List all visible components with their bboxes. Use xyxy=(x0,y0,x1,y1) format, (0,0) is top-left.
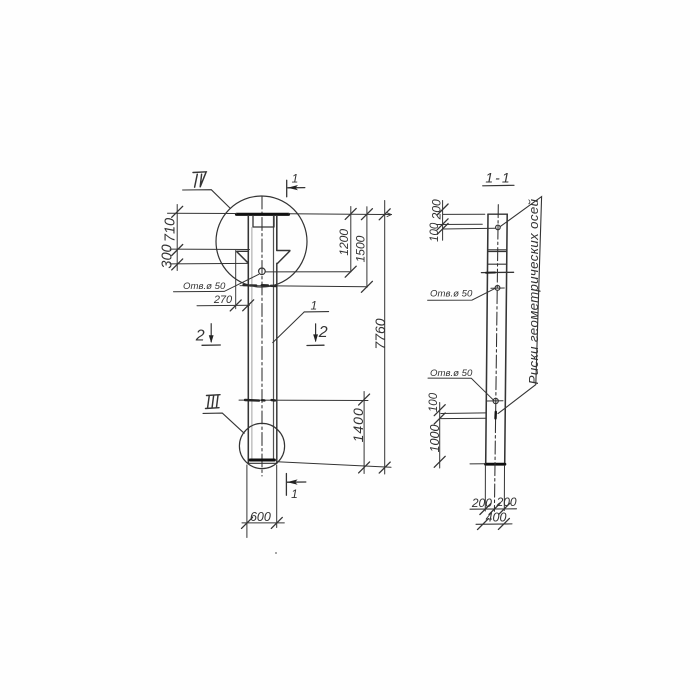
svg-text:300: 300 xyxy=(160,244,176,268)
svg-text:Риски геометрических осей: Риски геометрических осей xyxy=(526,198,541,384)
svg-text:600: 600 xyxy=(250,510,271,524)
svg-text:1: 1 xyxy=(292,172,299,186)
svg-text:1500: 1500 xyxy=(353,235,367,262)
svg-text:2: 2 xyxy=(318,324,328,341)
svg-text:1400: 1400 xyxy=(350,407,366,442)
svg-text:2: 2 xyxy=(195,328,205,345)
svg-text:710: 710 xyxy=(163,218,179,242)
svg-text:200: 200 xyxy=(471,496,492,510)
svg-text:1: 1 xyxy=(291,487,298,501)
svg-text:7760: 7760 xyxy=(372,318,388,349)
svg-text:100: 100 xyxy=(428,392,440,412)
svg-text:1000: 1000 xyxy=(428,425,442,453)
svg-text:1-1: 1-1 xyxy=(485,170,511,186)
svg-text:1: 1 xyxy=(310,298,317,312)
svg-text:270: 270 xyxy=(213,294,233,306)
svg-text:1200: 1200 xyxy=(337,229,351,256)
svg-text:400: 400 xyxy=(486,510,507,524)
svg-text:Отв.ø 50: Отв.ø 50 xyxy=(183,281,226,292)
svg-text:200: 200 xyxy=(496,495,517,509)
svg-text:200: 200 xyxy=(430,199,444,220)
svg-text:100: 100 xyxy=(429,222,441,242)
svg-text:Отв.ø 50: Отв.ø 50 xyxy=(430,368,473,379)
svg-text:Отв.ø 50: Отв.ø 50 xyxy=(430,289,473,300)
